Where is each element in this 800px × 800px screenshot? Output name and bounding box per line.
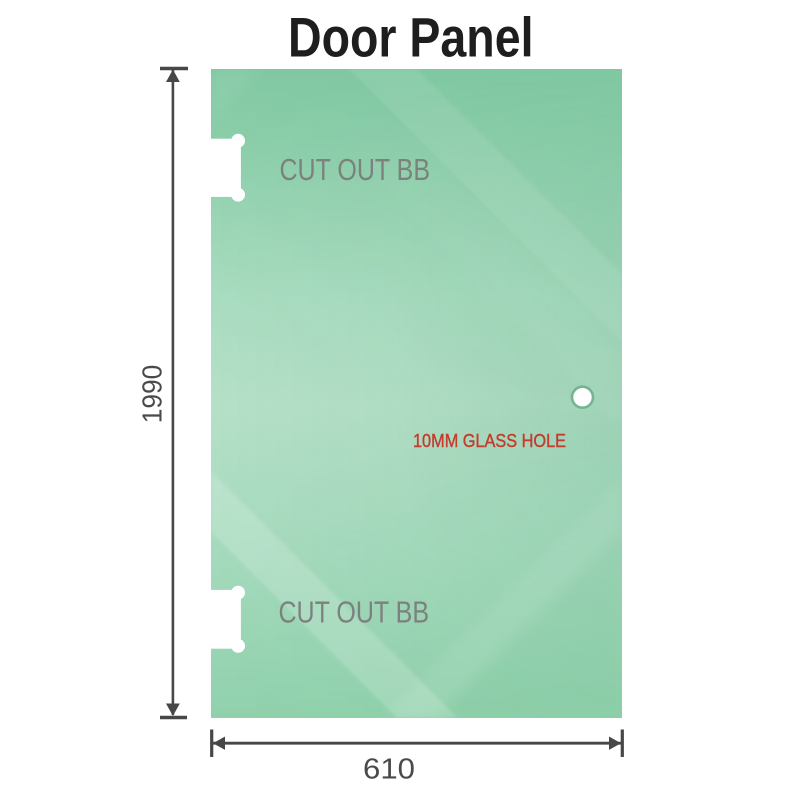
svg-text:Door Panel: Door Panel bbox=[288, 6, 534, 69]
svg-text:1990: 1990 bbox=[136, 365, 167, 424]
svg-text:610: 610 bbox=[363, 754, 415, 786]
svg-text:10MM GLASS HOLE: 10MM GLASS HOLE bbox=[413, 431, 566, 451]
svg-text:CUT OUT BB: CUT OUT BB bbox=[279, 594, 430, 629]
svg-text:CUT OUT BB: CUT OUT BB bbox=[280, 152, 431, 187]
